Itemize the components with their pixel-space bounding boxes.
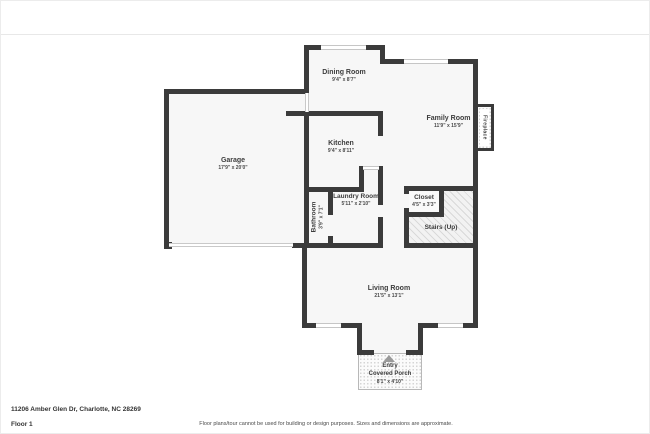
entry-direction-icon <box>383 355 395 362</box>
bathroom-dims: 3'9" x 7'1" <box>319 202 326 233</box>
garage-door-opening <box>169 243 293 247</box>
wall <box>286 111 383 116</box>
garage-label: Garage 17'9" x 20'0" <box>203 156 263 172</box>
closet-dims: 4'5" x 3'3" <box>404 202 444 209</box>
wall <box>304 111 309 248</box>
porch-name: Covered Porch <box>358 371 422 379</box>
dining-room-name: Dining Room <box>314 68 374 77</box>
porch-label: Entry Covered Porch 8'1" x 4'10" <box>358 363 422 385</box>
family-room-dims: 11'9" x 15'9" <box>411 123 486 130</box>
wall <box>473 59 478 328</box>
wall <box>406 243 478 248</box>
entry-floor <box>359 326 421 353</box>
stairs-label: Stairs (Up) <box>409 224 473 232</box>
porch-entry-text: Entry <box>358 363 422 371</box>
wall <box>406 350 423 355</box>
family-room-label: Family Room 11'9" x 15'9" <box>411 114 486 130</box>
living-room-dims: 21'5" x 13'1" <box>349 293 429 300</box>
kitchen-dims: 9'4" x 8'11" <box>316 148 366 155</box>
wall <box>292 243 383 248</box>
garage-name: Garage <box>203 156 263 165</box>
garage-dims: 17'9" x 20'0" <box>203 165 263 172</box>
window <box>363 166 379 170</box>
porch-dims: 8'1" x 4'10" <box>358 379 422 386</box>
wall <box>164 89 169 247</box>
page-divider-line <box>1 34 650 35</box>
wall <box>404 212 444 217</box>
wall <box>164 89 309 94</box>
disclaimer-text: Floor plans/tour cannot be used for buil… <box>1 421 650 427</box>
window <box>316 323 341 328</box>
wall <box>304 45 309 93</box>
window <box>321 45 366 50</box>
dining-room-dims: 9'4" x 8'7" <box>314 77 374 84</box>
door-opening <box>305 93 309 112</box>
dining-room-label: Dining Room 9'4" x 8'7" <box>314 68 374 84</box>
living-room-label: Living Room 21'5" x 13'1" <box>349 284 429 300</box>
laundry-room-label: Laundry Room 5'11" x 2'10" <box>330 193 382 208</box>
window <box>404 59 448 64</box>
stairs-name: Stairs (Up) <box>409 224 473 232</box>
laundry-room-name: Laundry Room <box>330 193 382 201</box>
family-room-name: Family Room <box>411 114 486 123</box>
wall <box>404 186 409 194</box>
laundry-room-dims: 5'11" x 2'10" <box>330 201 382 208</box>
window <box>438 323 463 328</box>
wall <box>302 246 307 328</box>
floor-plan-page: Fireplace Dining Room 9'4" x 8'7" Family… <box>0 0 650 434</box>
bathroom-label: Bathroom 3'9" x 7'1" <box>311 202 326 233</box>
wall <box>304 187 364 192</box>
wall <box>378 111 383 136</box>
kitchen-label: Kitchen 9'4" x 8'11" <box>316 139 366 155</box>
property-address: 11206 Amber Glen Dr, Charlotte, NC 28269 <box>11 406 141 413</box>
kitchen-name: Kitchen <box>316 139 366 148</box>
closet-label: Closet 4'5" x 3'3" <box>404 194 444 209</box>
bathroom-name: Bathroom <box>311 202 319 233</box>
living-room-name: Living Room <box>349 284 429 293</box>
closet-name: Closet <box>404 194 444 202</box>
